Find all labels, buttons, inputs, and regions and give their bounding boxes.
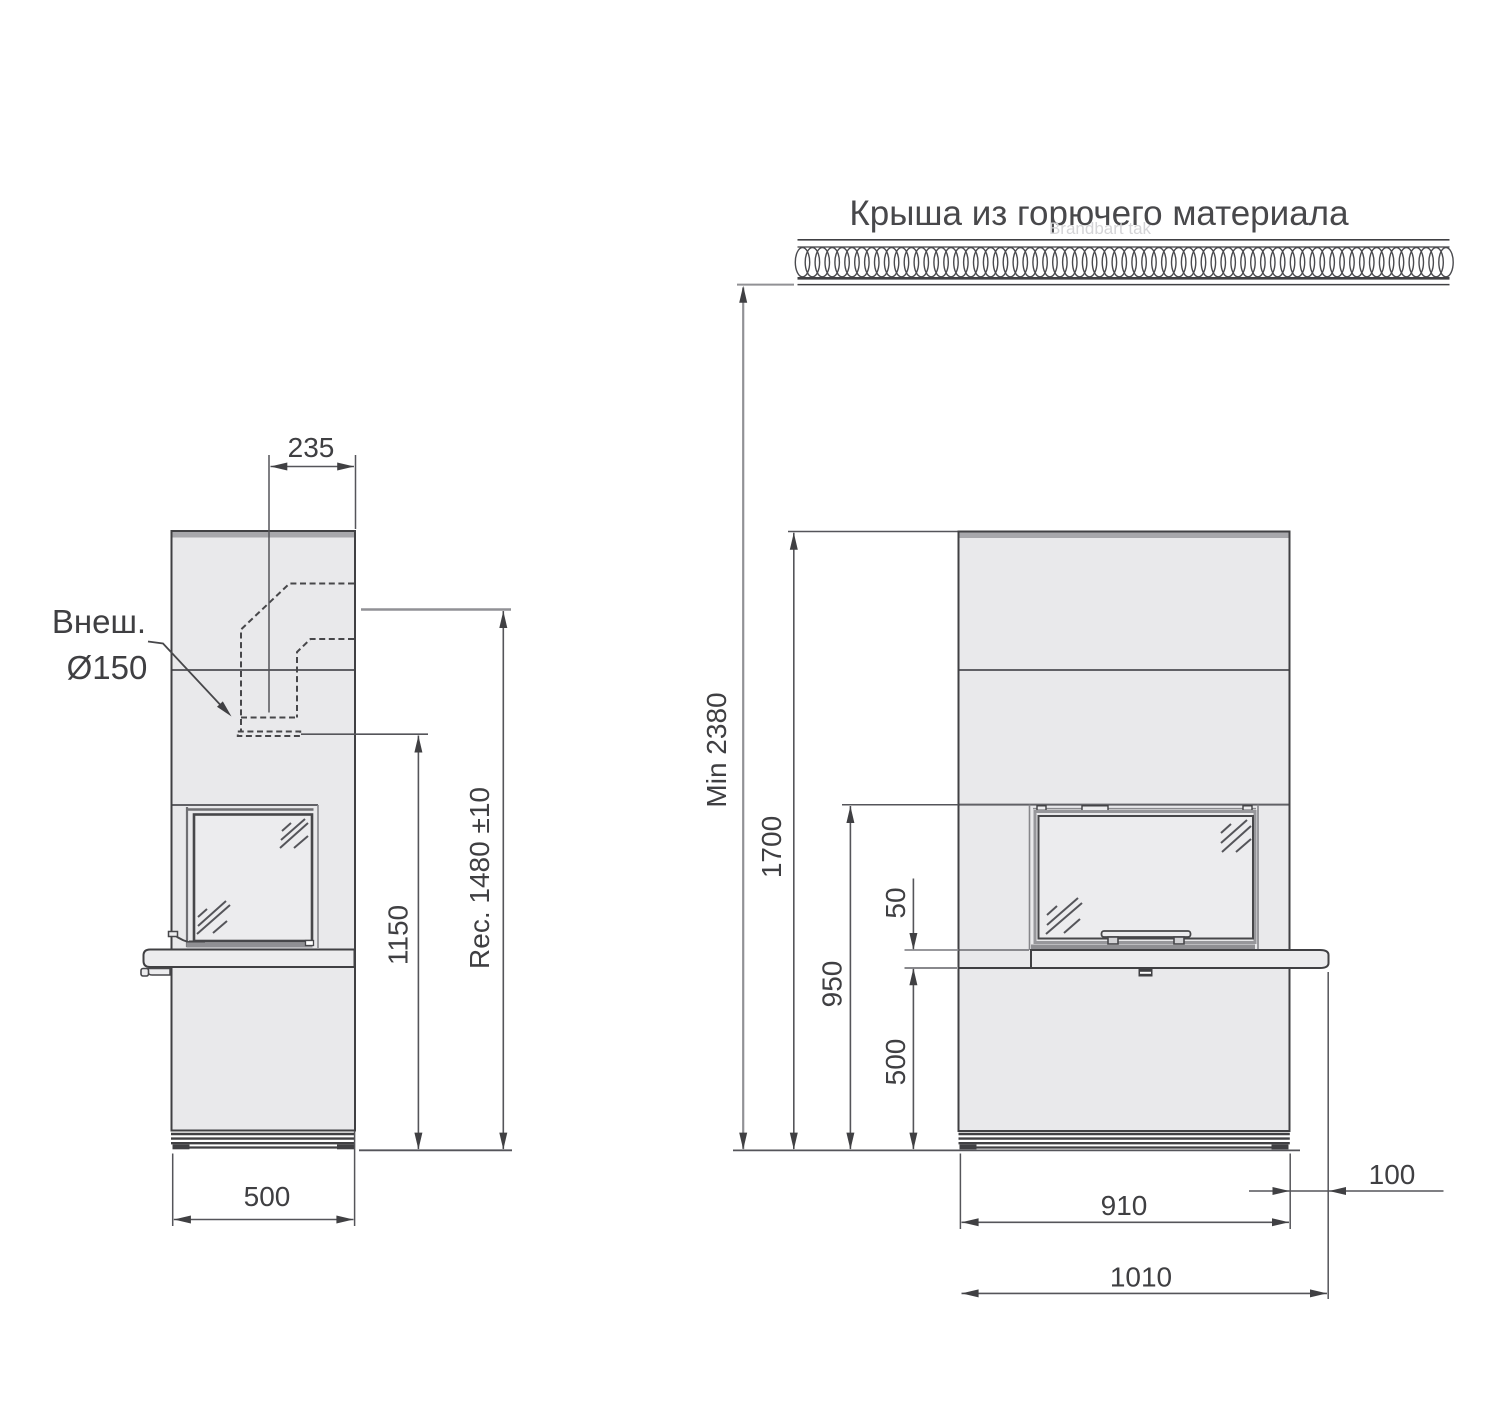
svg-text:100: 100 [1369, 1159, 1416, 1190]
svg-text:Ø150: Ø150 [67, 649, 148, 686]
svg-text:500: 500 [244, 1181, 291, 1212]
svg-text:235: 235 [288, 432, 335, 463]
svg-text:1150: 1150 [383, 905, 414, 965]
svg-text:50: 50 [880, 887, 911, 918]
svg-text:Brandbart tak: Brandbart tak [1049, 219, 1152, 238]
svg-text:910: 910 [1101, 1190, 1148, 1221]
svg-text:Внеш.: Внеш. [52, 603, 146, 640]
svg-text:950: 950 [817, 961, 848, 1008]
svg-text:500: 500 [880, 1039, 911, 1086]
svg-text:Rec. 1480 ±10: Rec. 1480 ±10 [464, 787, 495, 969]
svg-text:1010: 1010 [1110, 1262, 1172, 1293]
svg-text:1700: 1700 [756, 816, 787, 878]
svg-text:Min 2380: Min 2380 [701, 692, 732, 807]
